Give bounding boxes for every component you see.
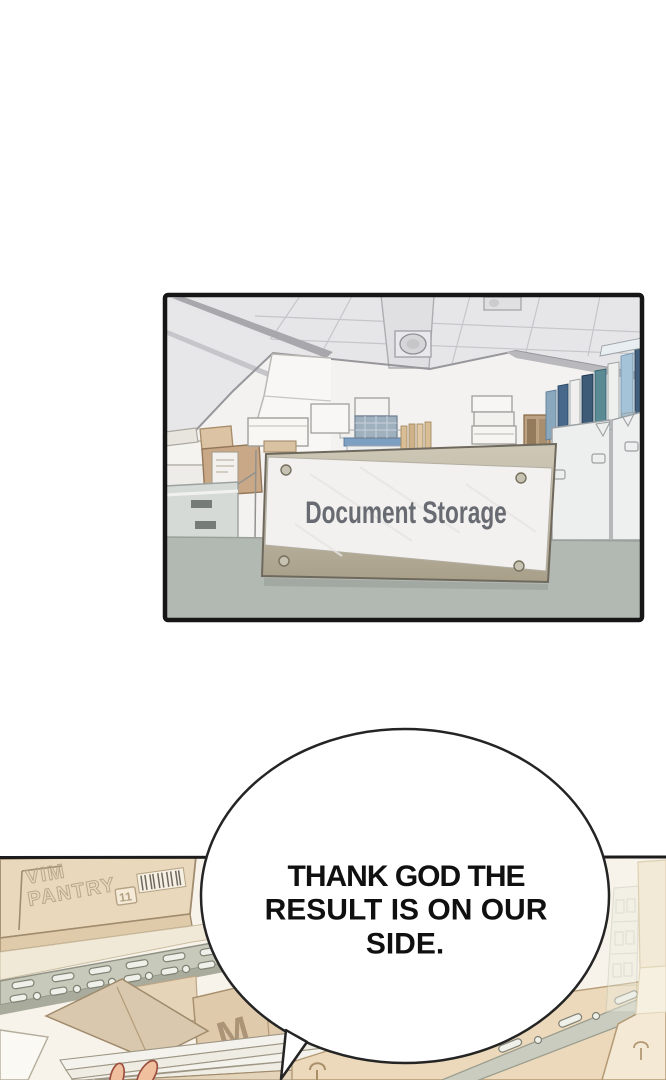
svg-text:THANK GOD THE: THANK GOD THE (288, 860, 525, 893)
svg-text:11: 11 (118, 889, 133, 905)
svg-text:RESULT IS ON OUR: RESULT IS ON OUR (265, 894, 548, 927)
svg-text:SIDE.: SIDE. (366, 928, 444, 961)
svg-text:Document Storage: Document Storage (305, 494, 507, 530)
